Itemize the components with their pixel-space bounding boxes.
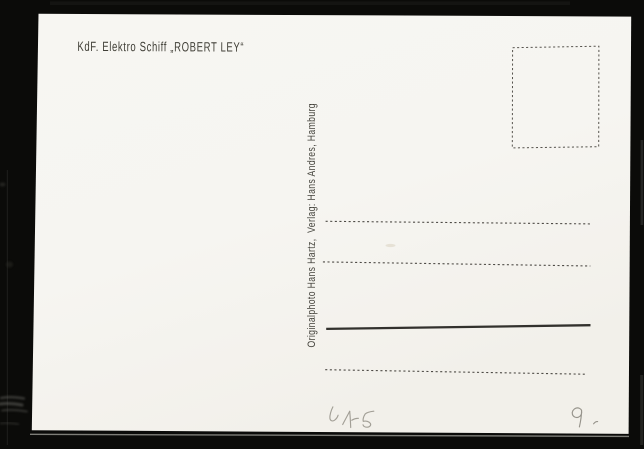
svg-text:Originalphoto Hans Hartz, Ver: Originalphoto Hans Hartz, Verlag: Hans A… [306, 103, 318, 348]
svg-text:KdF. Elektro Schiff „ROBERT LE: KdF. Elektro Schiff „ROBERT LEY“ [77, 39, 244, 55]
